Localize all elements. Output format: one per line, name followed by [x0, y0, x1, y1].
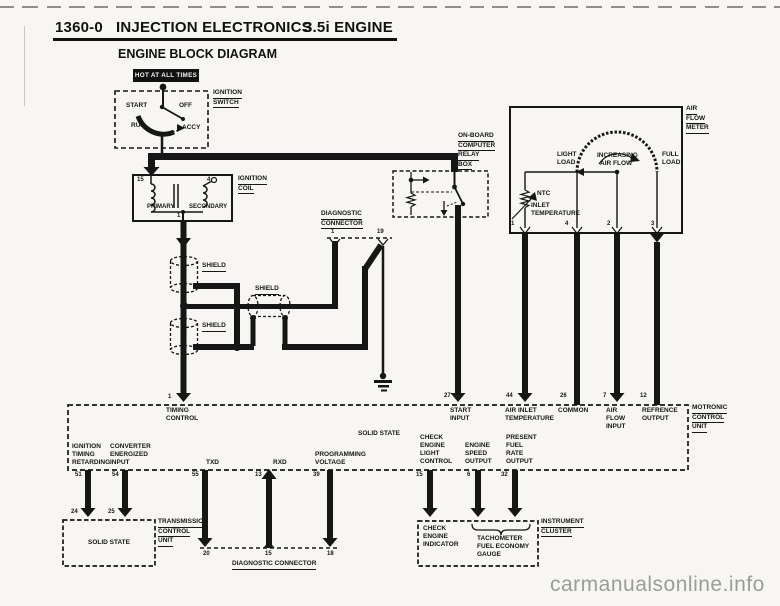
- ecu-pin-num: 12: [640, 393, 647, 400]
- check-engine-indicator-label: CHECKENGINEINDICATOR: [423, 525, 459, 549]
- diagnostic-connector-bottom-label: DIAGNOSTIC CONNECTOR: [232, 560, 316, 570]
- diagnostic-connector-top-label: DIAGNOSTIC CONNECTOR: [321, 210, 363, 229]
- diagnostic-connector-top-symbol: [327, 238, 392, 376]
- ecu-pin-num: 51: [75, 472, 82, 479]
- relay-box-symbol: [393, 171, 488, 217]
- coil-primary-label: PRIMARY: [147, 203, 174, 211]
- tcu-pin-25: 25: [108, 509, 115, 516]
- ecu-pin-num: 54: [112, 472, 119, 479]
- afm-pin-3: 3: [651, 221, 654, 228]
- ecu-pin-label: PROGRAMMINGVOLTAGE: [315, 451, 366, 467]
- afm-increasing-label: INCREASINGAIR FLOW: [597, 152, 638, 168]
- ecu-pin-num: 27: [444, 393, 451, 400]
- motronic-label: MOTRONIC CONTROL UNIT: [692, 404, 727, 433]
- diag-bottom-pin-20: 20: [203, 551, 210, 558]
- diag-bottom-pin-18: 18: [327, 551, 334, 558]
- wiring-lines: [0, 0, 780, 606]
- shield-drain-wires: [193, 245, 381, 351]
- ecu-pin-label: TIMINGCONTROL: [166, 407, 198, 423]
- power-feed: [115, 84, 208, 156]
- shield-label-2: SHIELD: [202, 322, 226, 332]
- ecu-pin-label: REFRENCEOUTPUT: [642, 407, 678, 423]
- afm-ntc-label: NTC: [537, 190, 550, 198]
- ecu-pin-num: 39: [313, 472, 320, 479]
- afm-to-ecu-wires: [518, 233, 665, 405]
- shield-label-3: SHIELD: [255, 285, 279, 295]
- ignition-switch-label: IGNITION SWITCH: [213, 89, 242, 108]
- switch-pos-accy: ACCY: [182, 124, 200, 132]
- ground-symbol: [374, 373, 392, 392]
- ecu-pin-label: ENGINESPEEDOUTPUT: [465, 442, 492, 466]
- tachometer-gauge-label: TACHOMETERFUEL ECONOMYGAUGE: [477, 535, 529, 559]
- hot-at-all-times-tag: HOT AT ALL TIMES: [133, 69, 199, 82]
- ignition-coil-label: IGNITION COIL: [238, 175, 267, 194]
- ecu-pin-num: 26: [560, 393, 567, 400]
- coil-secondary-label: SECONDARY: [189, 203, 227, 211]
- ecu-pin-num: 55: [192, 472, 199, 479]
- ecu-pin-label: COMMON: [558, 407, 588, 415]
- transmission-unit-label: TRANSMISSION CONTROL UNIT: [158, 518, 208, 547]
- coil-to-ecu-wire: [176, 221, 191, 402]
- ecu-pin-label: IGNITIONTIMINGRETARDING: [72, 443, 110, 467]
- ecu-pin-label: PRESENTFUELRATEOUTPUT: [506, 434, 537, 466]
- ecu-pin-label: STARTINPUT: [450, 407, 471, 423]
- relay-box-label: ON-BOARD COMPUTER RELAY BOX: [458, 132, 495, 170]
- afm-full-load-label: FULLLOAD: [662, 151, 680, 167]
- afm-light-load-label: LIGHTLOAD: [557, 151, 577, 167]
- air-flow-meter-label: AIR FLOW METER: [686, 105, 709, 134]
- switch-pos-start: START: [126, 102, 147, 110]
- diag-top-pin-19: 19: [377, 229, 384, 236]
- scanned-manual-page: 1360-0 INJECTION ELECTRONICS 3.5i ENGINE…: [0, 0, 780, 606]
- coil-pin-4: 4: [207, 177, 210, 184]
- afm-inlet-temp-label: INLETTEMPERATURE: [531, 202, 580, 218]
- switch-pos-run: RUN: [131, 122, 145, 130]
- ecu-pin-num: 1: [168, 394, 171, 401]
- ecu-pin-label: CONVERTERENERGIZEDINPUT: [110, 443, 151, 467]
- tcu-solid-state: SOLID STATE: [63, 539, 155, 546]
- ecu-pin-num: 44: [506, 393, 513, 400]
- coil-pin-1: 1: [177, 213, 180, 220]
- watermark: carmanualsonline.info: [550, 573, 765, 597]
- switch-pos-off: OFF: [179, 102, 192, 110]
- ecu-pin-num: 13: [255, 472, 262, 479]
- instrument-cluster-label: INSTRUMENT CLUSTER: [541, 518, 584, 537]
- relay-to-ecu-wire: [451, 217, 466, 402]
- ecu-pin-num: 32: [501, 472, 508, 479]
- ecu-pin-label: AIR INLETTEMPERATURE: [505, 407, 554, 423]
- shielded-pair-run: [180, 302, 338, 310]
- coil-pin-15: 15: [137, 177, 144, 184]
- diag-bottom-pin-15: 15: [265, 551, 272, 558]
- afm-pin-4: 4: [565, 221, 568, 228]
- afm-pin-1: 1: [511, 221, 514, 228]
- tcu-pin-24: 24: [71, 509, 78, 516]
- ecu-pin-label: TXD: [206, 459, 219, 467]
- diag-top-pin-1: 1: [331, 229, 334, 236]
- ecu-pin-label: CHECKENGINELIGHTCONTROL: [420, 434, 452, 466]
- shield-label-1: SHIELD: [202, 262, 226, 272]
- ecu-pin-label: RXD: [273, 459, 287, 467]
- ecu-pin-num: 7: [603, 393, 606, 400]
- ecu-pin-label: AIRFLOWINPUT: [606, 407, 626, 431]
- ecu-pin-num: 6: [467, 472, 470, 479]
- ecu-pin-num: 15: [416, 472, 423, 479]
- motronic-solid-state: SOLID STATE: [358, 430, 400, 438]
- afm-pin-2: 2: [607, 221, 610, 228]
- ignition-coil-symbol: [133, 175, 232, 221]
